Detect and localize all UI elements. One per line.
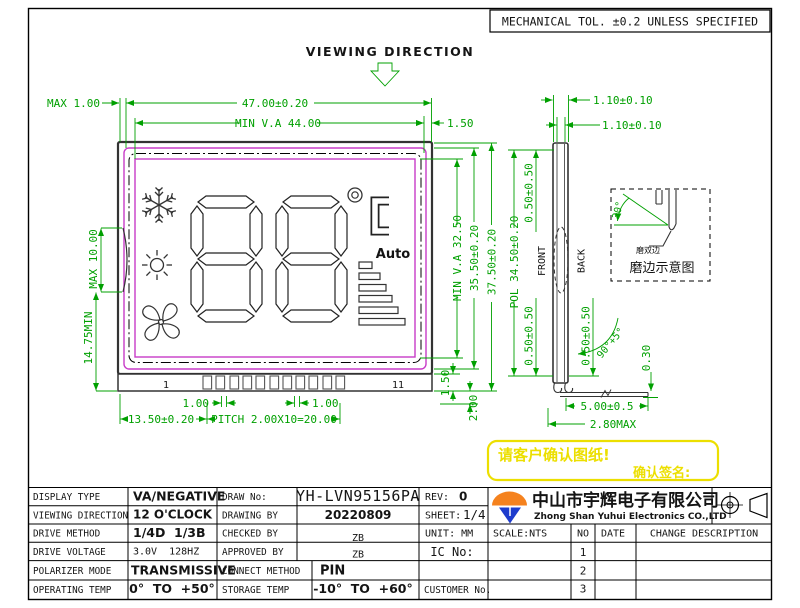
polarizer-mode-value: TRANSMISSIVE <box>131 563 236 578</box>
storage-temp-value: -10° TO +60° <box>313 581 413 596</box>
front-label: FRONT <box>537 246 548 276</box>
dim-height-inner: 35.50±0.20 <box>468 225 481 291</box>
dim-lower-left: 14.75MIN <box>82 312 95 365</box>
viewing-direction-label: VIEWING DIRECTION <box>306 44 475 59</box>
rev-table-desc-header: CHANGE DESCRIPTION <box>650 529 758 540</box>
display-type-label: DISPLAY TYPE <box>33 492 100 503</box>
approved-by-label: APPROVED BY <box>222 547 284 558</box>
dim-glass-thickness: 1.10±0.10 <box>593 94 653 107</box>
operating-temp-value: 0° TO +50° <box>129 581 215 596</box>
dim-right-gap: 1.50 <box>447 117 474 130</box>
drive-method-value: 1/4D 1/3B <box>133 525 206 540</box>
ic-no-label: IC No: <box>430 545 473 559</box>
rev-row-2: 2 <box>580 565 587 578</box>
drawing-by-label: DRAWING BY <box>222 511 278 522</box>
dim-lead-offset: 0.50±0.50 <box>580 306 593 366</box>
dim-pol-height: POL 34.50±0.20 <box>508 216 521 309</box>
pin11-label: 11 <box>392 380 404 391</box>
rev-table-date-header: DATE <box>601 529 625 540</box>
unit-label: UNIT: MM <box>425 529 473 540</box>
dim-va-width: MIN V.A 44.00 <box>235 117 321 130</box>
operating-temp-label: OPERATING TEMP <box>33 585 112 596</box>
dim-foot-max: 2.80MAX <box>590 418 637 431</box>
dim-max-left: MAX 1.00 <box>47 97 100 110</box>
dim-pol-top: 0.50±0.50 <box>523 163 536 223</box>
tolerance-note: MECHANICAL TOL. ±0.2 UNLESS SPECIFIED <box>502 15 758 29</box>
dim-pin-offset: 13.50±0.20 <box>128 413 194 426</box>
customer-no-label: CUSTOMER No. <box>424 585 491 596</box>
display-type-value: VA/NEGATIVE <box>133 489 225 504</box>
pin-row <box>203 376 345 389</box>
checked-by-label: CHECKED BY <box>222 529 278 540</box>
rev-value: 0 <box>459 490 467 504</box>
dim-total-thickness: 1.10±0.10 <box>602 119 662 132</box>
company-name-cn: 中山市宇辉电子有限公司 <box>532 490 719 511</box>
viewing-direction-row-label: VIEWING DIRECTION <box>33 511 128 522</box>
dim-foot-length: 5.00±0.5 <box>581 400 634 413</box>
confirm-line1: 请客户确认图纸! <box>498 446 610 464</box>
connect-method-label: CONNECT METHOD <box>222 566 301 577</box>
dim-pin-a: 1.00 <box>183 397 210 410</box>
draw-no-label: DRAW No: <box>222 492 267 503</box>
dim-pin-b: 1.00 <box>312 397 339 410</box>
scale-label: SCALE:NTS <box>493 529 547 540</box>
sheet-value: 1/4 <box>463 507 486 522</box>
confirm-line2: 确认签名: <box>633 465 690 481</box>
drive-method-label: DRIVE METHOD <box>33 529 101 540</box>
connect-method-value: PIN <box>320 564 345 579</box>
viewing-direction-value: 12 O'CLOCK <box>133 508 213 522</box>
rev-label: REV: <box>425 492 449 503</box>
detail-caption: 磨边示意图 <box>629 260 694 276</box>
rev-row-3: 3 <box>580 583 587 596</box>
dim-height-total: 37.50±0.20 <box>486 229 499 295</box>
polarizer-mode-label: POLARIZER MODE <box>33 566 111 577</box>
dim-pol-bottom: 0.50±0.50 <box>523 306 536 366</box>
rev-row-1: 1 <box>580 546 587 559</box>
rev-table-no-header: NO <box>577 529 589 540</box>
drive-voltage-label: DRIVE VOLTAGE <box>33 547 106 558</box>
storage-temp-label: STORAGE TEMP <box>222 585 290 596</box>
dim-pitch: PITCH 2.00X10=20.00 <box>211 413 337 426</box>
drive-voltage-value: 3.0V 128HZ <box>133 547 199 558</box>
dim-va-height: MIN V.A 32.50 <box>451 215 464 301</box>
drawing-by-value: 20220809 <box>325 508 392 522</box>
sheet-label: SHEET: <box>425 511 461 522</box>
checked-by-value: ZB <box>352 533 364 544</box>
dim-pin-len: 2.00 <box>467 395 480 422</box>
back-label: BACK <box>577 249 588 273</box>
dim-bump: MAX 10.00 <box>87 229 100 289</box>
company-name-en: Zhong Shan Yuhui Electronics CO.,LTD <box>534 512 727 522</box>
auto-label: Auto <box>376 247 411 262</box>
dim-lead-thickness: 0.30 <box>640 345 653 372</box>
detail-note: 磨双边 <box>636 245 660 255</box>
approved-by-value: ZB <box>352 550 364 561</box>
drawing-sheet: MECHANICAL TOL. ±0.2 UNLESS SPECIFIED VI… <box>0 0 800 608</box>
dim-strip: 1.50 <box>439 370 452 397</box>
front-view: 1 11 <box>118 142 432 391</box>
dim-width: 47.00±0.20 <box>242 97 308 110</box>
drawing-canvas: MECHANICAL TOL. ±0.2 UNLESS SPECIFIED VI… <box>0 0 800 608</box>
pin1-label: 1 <box>163 380 169 391</box>
draw-no-value: YH-LVN95156PA <box>296 487 420 505</box>
